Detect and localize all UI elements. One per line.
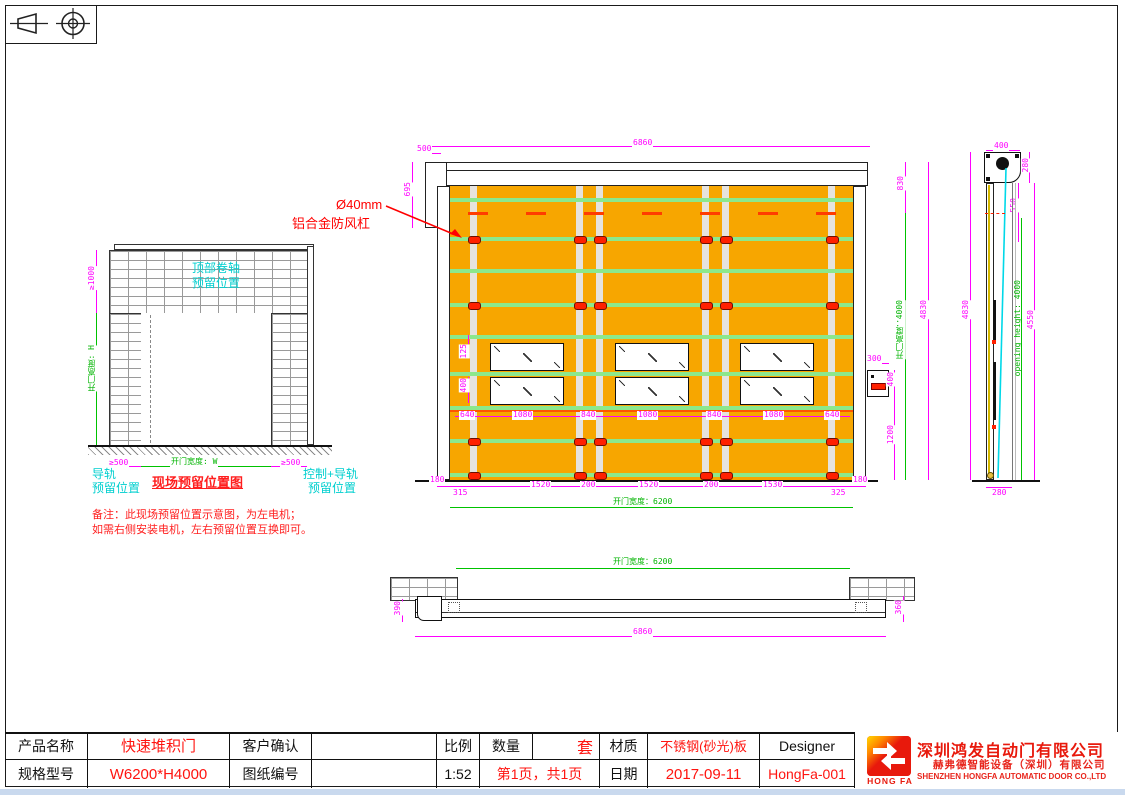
dim-line-4550 <box>1034 183 1035 480</box>
annotation-leader-arrow <box>382 198 472 248</box>
note-line-2: 如需右侧安装电机，左右预留位置互换即可。 <box>92 521 312 537</box>
window <box>490 377 564 405</box>
windbar-clamp <box>826 438 839 446</box>
dim-500: 500 <box>416 145 432 154</box>
dim-line-125 <box>468 335 469 344</box>
projection-symbol-box <box>5 5 97 44</box>
windbar-clamp <box>720 472 733 480</box>
dim-695: 695 <box>403 182 414 196</box>
win-dim-6: 640 <box>824 411 840 420</box>
wall-top-face <box>114 244 314 250</box>
dim-4830-side: 4830 <box>961 300 972 319</box>
side-red-dash <box>985 213 1005 214</box>
dim-ge500-right: ≥500 <box>280 459 301 468</box>
floor-line-side <box>972 480 1040 482</box>
door-opening <box>141 313 271 445</box>
dim-opening-height-site: 开门高度: H <box>87 345 98 391</box>
control-box-buttons <box>871 383 886 390</box>
plan-dotted-rect <box>855 602 867 613</box>
windbar-clamp <box>700 472 713 480</box>
plan-motor-box <box>417 596 442 621</box>
top-roller-label-1: 顶部卷轴 <box>192 262 240 276</box>
guide-rail-right <box>853 186 866 480</box>
scale-label-cell: 比例 <box>437 732 480 760</box>
company-name-en: SHENZHEN HONGFA AUTOMATIC DOOR CO.,LTD <box>917 772 1106 781</box>
dim-line-4830-main <box>928 162 929 480</box>
strap-dim-1: 315 <box>452 489 468 498</box>
windbar-clamp <box>594 472 607 480</box>
strap-dim-6: 1530 <box>762 481 783 490</box>
dim-opening-width-site: 开门宽度: W <box>170 458 218 467</box>
windbar-clamp <box>700 302 713 310</box>
plan-wall-right <box>849 577 915 601</box>
plan-header-inner-line <box>416 612 885 613</box>
site-diagram-title: 现场预留位置图 <box>152 472 243 491</box>
dim-280bot: 280 <box>991 489 1007 498</box>
side-bottom-roller <box>987 472 994 479</box>
side-red-dot <box>992 425 996 429</box>
windbar-clamp <box>826 302 839 310</box>
designer-value-cell: HongFa-001 <box>760 760 855 788</box>
windbar-annotation-2: 铝合金防风杠 <box>292 213 370 232</box>
top-roller-label-2: 预留位置 <box>192 277 240 291</box>
window <box>490 343 564 371</box>
windbar-clamp <box>720 236 733 244</box>
roller-corner-mark <box>986 154 990 158</box>
control-rail-label-2: 预留位置 <box>308 482 356 496</box>
dim-360: 360 <box>894 600 905 614</box>
win-dim-4: 840 <box>706 411 722 420</box>
windbar-clamp <box>574 236 587 244</box>
first-angle-target-icon <box>50 6 96 42</box>
windbar-clamp <box>574 438 587 446</box>
window <box>740 377 814 405</box>
designer-label-cell: Designer <box>760 732 855 760</box>
customer-confirm-value-cell <box>312 732 437 760</box>
windbar-clamp <box>468 472 481 480</box>
windbar-clamp <box>826 472 839 480</box>
strap-dim-8: 180 <box>852 476 868 485</box>
dim-390: 390 <box>393 601 404 615</box>
first-angle-cone-icon <box>6 6 52 42</box>
win-dim-1: 1080 <box>512 411 533 420</box>
dim-6860-plan: 6860 <box>632 628 653 637</box>
strap-dim-4: 1520 <box>638 481 659 490</box>
model-value-cell: W6200*H4000 <box>88 760 230 788</box>
dim-4000-side: opening height: 4000 <box>1013 280 1024 376</box>
control-box-dot <box>871 375 874 378</box>
logo-short-name: HONG FA <box>865 776 915 786</box>
win-dim-5: 1080 <box>763 411 784 420</box>
product-name-label-cell: 产品名称 <box>5 732 88 760</box>
win-dim-0: 640 <box>459 411 475 420</box>
qty-value-cell: 套 <box>533 732 600 760</box>
roller-cover <box>425 162 868 186</box>
dim-400win: 400 <box>459 378 470 392</box>
window <box>615 377 689 405</box>
bottom-blue-strip <box>0 789 1125 795</box>
pages-value-cell: 第1页，共1页 <box>480 760 600 788</box>
dim-1200: 1200 <box>886 425 897 444</box>
logo-area: HONG FA 深圳鸿发自动门有限公司 赫弗德智能设备（深圳）有限公司 SHEN… <box>855 732 1118 788</box>
date-label-cell: 日期 <box>600 760 648 788</box>
material-value-cell: 不锈钢(砂光)板 <box>648 732 760 760</box>
note-line-1: 备注：此现场预留位置示意图，为左电机； <box>92 506 301 522</box>
wall-left-pier <box>109 313 143 447</box>
date-value-cell: 2017-09-11 <box>648 760 760 788</box>
windbar-clamp <box>594 236 607 244</box>
dim-line-6200-main <box>450 507 853 508</box>
qty-label-cell: 数量 <box>480 732 533 760</box>
windbar-clamp <box>720 438 733 446</box>
roller-corner-mark <box>1015 154 1019 158</box>
windbar-annotation-1: Ø40mm <box>336 197 382 212</box>
window <box>615 343 689 371</box>
windbar-clamp <box>594 438 607 446</box>
dim-4550: 4550 <box>1026 310 1037 329</box>
scale-value-cell: 1:52 <box>437 760 480 788</box>
strap-dim-2: 1520 <box>530 481 551 490</box>
dim-400side: 400 <box>993 142 1009 151</box>
plan-header-bar <box>415 599 886 618</box>
dim-ge1000: ≥1000 <box>87 266 98 290</box>
ground-hatch <box>88 447 332 455</box>
windbar-clamp <box>826 236 839 244</box>
logo-arrows-icon <box>867 736 911 776</box>
dim-6200-main: 开门宽度：6200 <box>612 498 673 507</box>
dim-4830-main: 4830 <box>919 300 930 319</box>
strap-dim-3: 200 <box>580 481 596 490</box>
dim-line-6200-plan <box>456 568 850 569</box>
dim-125: 125 <box>459 344 470 358</box>
rail-label-2: 预留位置 <box>92 482 140 496</box>
wall-right-face <box>307 246 314 445</box>
customer-confirm-label-cell: 客户确认 <box>230 732 312 760</box>
dim-830: 830 <box>896 176 907 190</box>
control-rail-label-1: 控制+导轨 <box>303 468 358 482</box>
drawing-no-value-cell <box>312 760 437 788</box>
dim-line-550 <box>1018 183 1019 242</box>
roller-cover-line <box>425 170 868 171</box>
dim-280top: 280 <box>1021 158 1032 172</box>
win-dim-3: 1080 <box>637 411 658 420</box>
dim-300: 300 <box>866 355 882 364</box>
windbar-clamp <box>700 236 713 244</box>
dim-6200-plan: 开门宽度：6200 <box>612 558 673 567</box>
win-dim-2: 840 <box>580 411 596 420</box>
rail-label-1: 导轨 <box>92 468 116 482</box>
hongfa-logo <box>867 736 911 776</box>
windbar-clamp <box>594 302 607 310</box>
company-name-cn2: 赫弗德智能设备（深圳）有限公司 <box>933 757 1106 772</box>
side-red-dot <box>992 340 996 344</box>
drawing-sheet: 顶部卷轴 预留位置 ≥1000 开门高度: H ≥500 开门宽度: W ≥50… <box>0 0 1125 795</box>
windbar-clamp <box>468 438 481 446</box>
windbar-clamp <box>700 438 713 446</box>
drawing-no-label-cell: 图纸编号 <box>230 760 312 788</box>
dim-4000-main: 开门高度：4000 <box>895 300 906 359</box>
opening-dashed-line <box>150 315 151 443</box>
windbar-clamp <box>468 302 481 310</box>
plan-dotted-rect <box>448 602 460 613</box>
windbar-clamp <box>574 472 587 480</box>
window <box>740 343 814 371</box>
strap-dim-5: 200 <box>703 481 719 490</box>
strap-dim-7: 325 <box>830 489 846 498</box>
dim-400box: 400 <box>886 372 897 386</box>
wall-right-pier <box>271 313 309 447</box>
dim-6860-top: 6860 <box>632 139 653 148</box>
material-label-cell: 材质 <box>600 732 648 760</box>
model-label-cell: 规格型号 <box>5 760 88 788</box>
strap-dim-0: 180 <box>429 476 445 485</box>
windbar-clamp <box>720 302 733 310</box>
windbar-clamp <box>574 302 587 310</box>
product-name-value-cell: 快速堆积门 <box>88 732 230 760</box>
door-curtain <box>450 186 853 480</box>
